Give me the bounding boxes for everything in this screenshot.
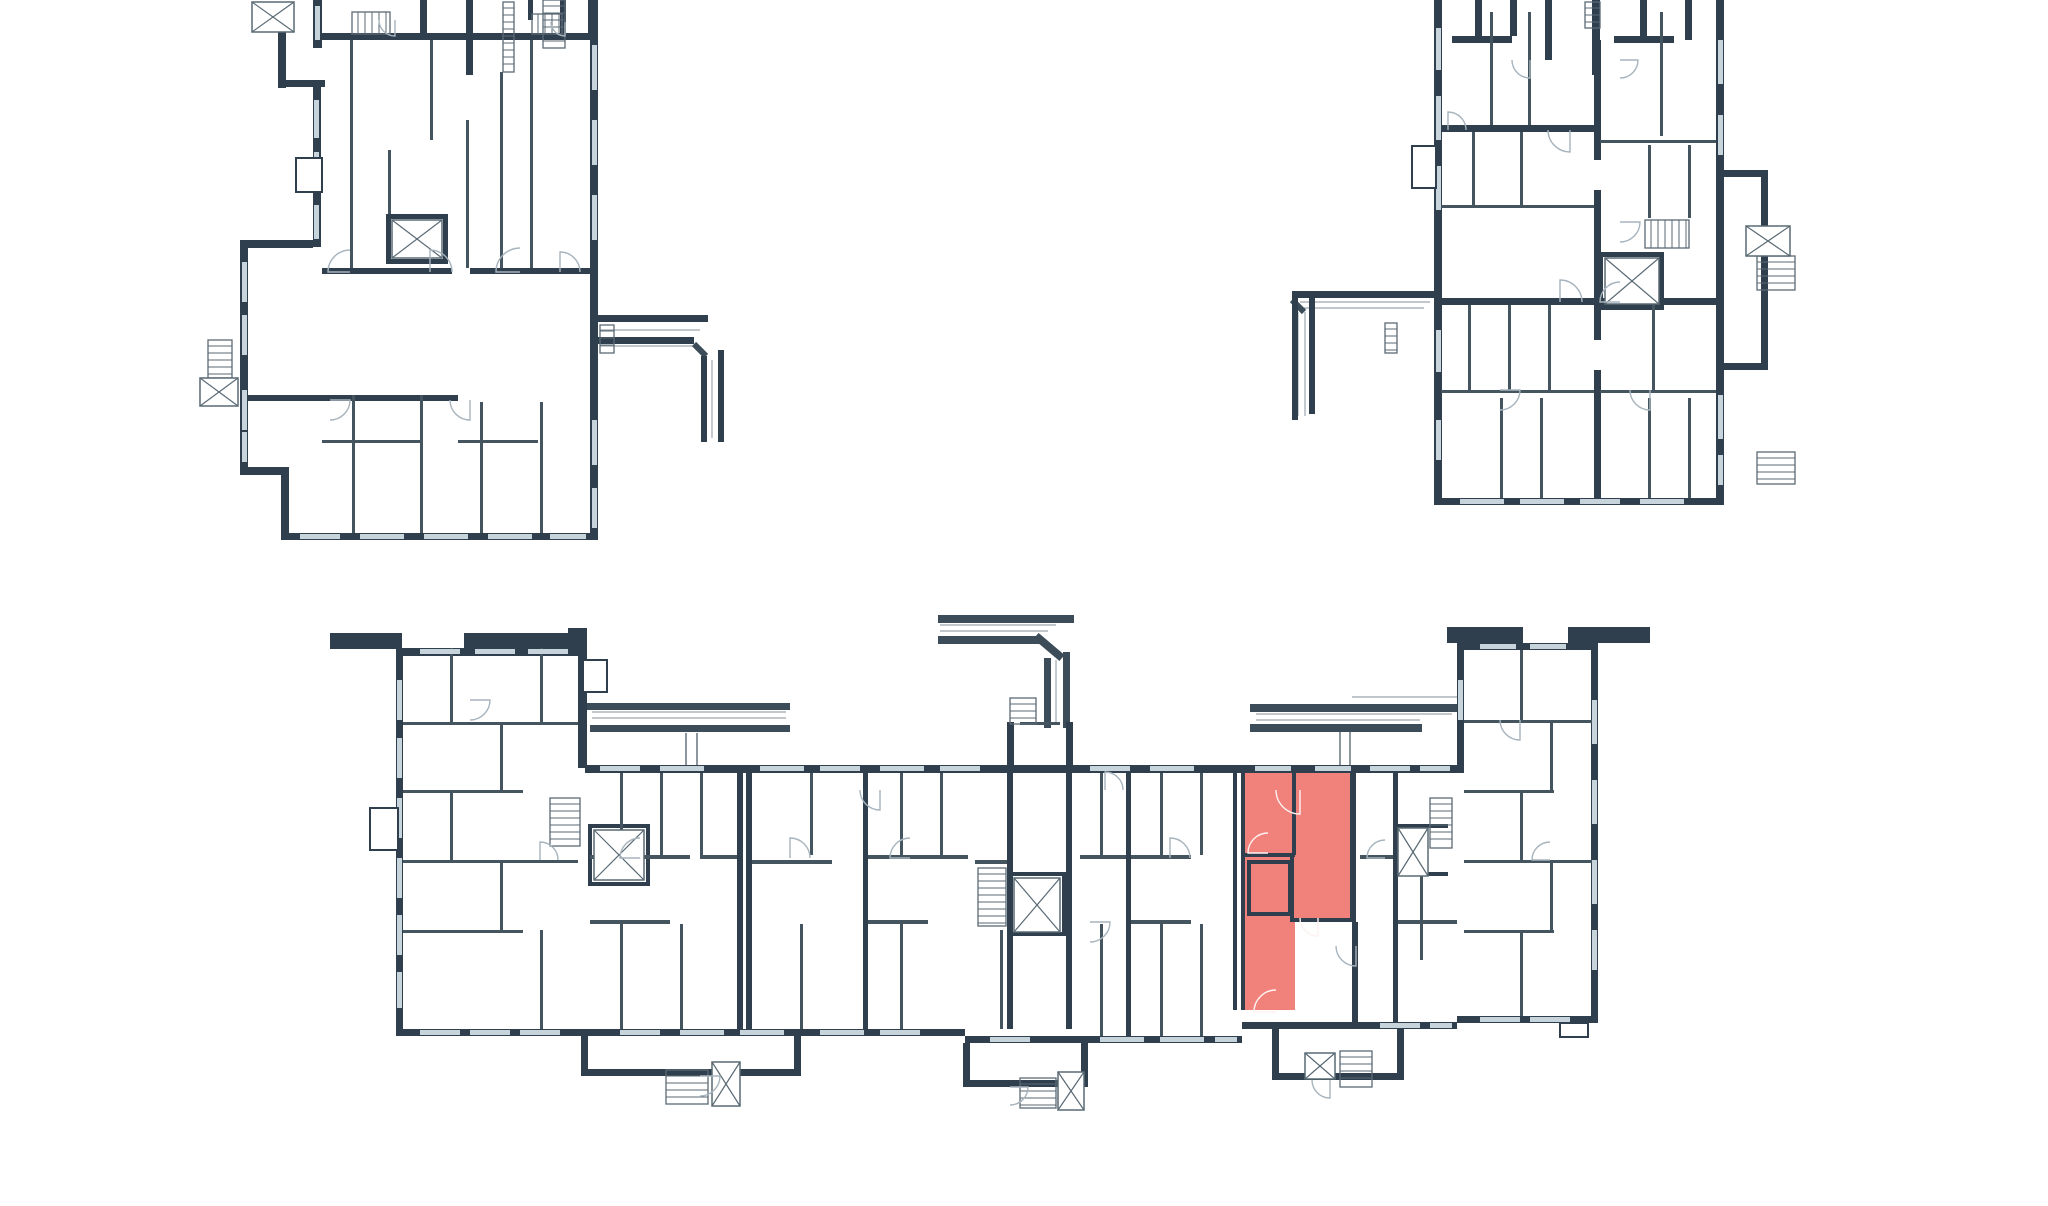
partition-wall (1200, 924, 1203, 1036)
partition-wall (1520, 132, 1523, 205)
window-glass (242, 432, 247, 462)
window-glass (820, 766, 860, 771)
wall-segment (1685, 0, 1692, 40)
wall-segment (1126, 765, 1131, 1036)
window-glass (592, 488, 597, 528)
window-glass (1480, 1017, 1520, 1022)
window-glass (940, 766, 980, 771)
window-glass (397, 915, 402, 955)
partition-wall (1540, 398, 1543, 498)
partition-wall (403, 722, 578, 725)
partition-wall (1100, 773, 1103, 855)
window-glass (242, 315, 247, 355)
wall-segment (1545, 0, 1552, 60)
partition-wall (403, 790, 523, 793)
window-glass (1592, 780, 1597, 824)
wall-segment (1241, 769, 1245, 1010)
window-glass (314, 205, 319, 239)
partition-wall (352, 395, 355, 533)
wall-segment (598, 315, 708, 322)
floor-plan-canvas (0, 0, 2048, 1206)
window-glass (990, 1037, 1030, 1042)
window-glass (1718, 395, 1723, 439)
wall-segment (588, 882, 650, 886)
window-glass (397, 738, 402, 778)
wall-segment (737, 765, 743, 1029)
partition-wall (700, 855, 737, 859)
window-glass (528, 649, 568, 654)
wall-segment (466, 0, 473, 75)
wall-segment (1457, 643, 1598, 650)
partition-wall (388, 150, 391, 214)
partition-wall (1000, 930, 1003, 1029)
wall-segment (1568, 627, 1650, 643)
wall-segment (322, 268, 452, 274)
wall-segment (470, 268, 598, 274)
window-glass (592, 45, 597, 90)
partition-wall (540, 648, 543, 722)
window-glass (315, 6, 320, 40)
elevator-icon (1014, 878, 1060, 932)
partition-wall (480, 402, 483, 533)
wall-segment (1614, 36, 1674, 43)
window-glass (1436, 28, 1441, 70)
partition-wall (1464, 930, 1554, 933)
wall-segment (718, 350, 724, 442)
wall-segment (1352, 922, 1358, 1022)
wall-segment (1598, 252, 1664, 257)
canopy-bar (1063, 652, 1070, 728)
partition-wall (500, 860, 503, 930)
wall-segment (278, 80, 325, 87)
partition-wall (1688, 398, 1691, 498)
wall-segment (1350, 769, 1356, 922)
partition-wall (900, 924, 903, 1029)
partition-wall (458, 440, 538, 443)
window-glass (1718, 40, 1723, 84)
window-glass (1315, 766, 1351, 771)
window-glass (1380, 1023, 1420, 1028)
wall-segment (386, 214, 391, 264)
window-glass (1718, 115, 1723, 155)
window-glass (1718, 455, 1723, 485)
window-glass (360, 534, 404, 539)
partition-wall (868, 920, 928, 924)
partition-wall (1080, 855, 1126, 859)
balcony-box (1412, 146, 1436, 188)
wall-segment (701, 356, 707, 442)
window-glass (1430, 1023, 1452, 1028)
partition-wall (810, 773, 813, 855)
window-glass (592, 120, 597, 165)
partition-wall (940, 773, 943, 855)
partition-wall (1648, 145, 1651, 218)
wall-segment (420, 0, 427, 40)
window-glass (397, 680, 402, 720)
wall-segment (1008, 872, 1012, 936)
wall-segment (1290, 853, 1294, 922)
partition-wall (1600, 140, 1716, 143)
partition-wall (752, 860, 832, 864)
elevator-icon (1058, 1072, 1084, 1110)
balcony-box (583, 660, 607, 692)
partition-wall (1648, 398, 1651, 498)
partition-wall (1131, 855, 1191, 859)
partition-wall (1508, 305, 1511, 390)
window-glass (1530, 1017, 1570, 1022)
partition-wall (800, 924, 803, 1029)
window-glass (1436, 420, 1441, 460)
partition-wall (1200, 773, 1203, 855)
window-glass (397, 972, 402, 1008)
window-glass (1420, 766, 1450, 771)
partition-wall (350, 40, 353, 268)
partition-wall (322, 440, 422, 443)
partition-wall (466, 120, 469, 268)
window-glass (1160, 1037, 1204, 1042)
window-glass (420, 1030, 460, 1035)
window-glass (420, 649, 460, 654)
wall-segment (568, 628, 587, 636)
window-glass (1100, 1037, 1144, 1042)
partition-wall (530, 40, 533, 268)
canopy-bar (1250, 704, 1460, 712)
balcony-box (296, 158, 322, 192)
partition-wall (700, 773, 703, 855)
window-glass (1580, 499, 1620, 504)
elevator-icon (1605, 258, 1659, 304)
window-glass (314, 100, 319, 138)
partition-wall (1464, 720, 1594, 723)
window-glass (424, 534, 468, 539)
window-glass (300, 534, 340, 539)
wall-segment (1441, 298, 1601, 305)
balcony-box (1560, 1023, 1588, 1037)
window-glass (1255, 766, 1291, 771)
wall-segment (1761, 170, 1768, 370)
partition-wall (1464, 860, 1594, 863)
canopy-bar (938, 615, 1074, 623)
wall-segment (1457, 1016, 1598, 1023)
partition-wall (660, 773, 663, 855)
wall-segment (240, 467, 288, 475)
wall-segment (578, 628, 587, 768)
wall-segment (1007, 722, 1014, 773)
partition-wall (680, 924, 683, 1029)
wall-segment (1066, 722, 1073, 773)
wall-segment (1640, 0, 1647, 40)
partition-wall (590, 920, 670, 924)
wall-segment (281, 467, 289, 540)
wall-segment (1510, 0, 1517, 36)
wall-segment (1233, 769, 1237, 1010)
window-glass (1530, 644, 1566, 649)
elevator-icon (392, 220, 442, 258)
wall-segment (1452, 36, 1512, 43)
wall-segment (1393, 765, 1398, 1022)
partition-wall (420, 395, 423, 533)
wall-segment (1441, 125, 1594, 132)
wall-segment (1247, 860, 1251, 916)
window-glass (470, 1030, 510, 1035)
elevator-icon (594, 830, 644, 880)
canopy-bar (590, 725, 790, 732)
floor-plan-svg (0, 0, 2048, 1206)
window-glass (1458, 680, 1463, 720)
elevator-icon (1746, 226, 1790, 256)
wall-segment (386, 214, 448, 219)
wall-segment (1594, 40, 1601, 160)
balcony-box (370, 808, 398, 850)
window-glass (520, 1030, 560, 1035)
wall-segment (746, 765, 752, 1029)
partition-wall (1441, 205, 1594, 208)
wall-segment (1292, 291, 1434, 298)
window-glass (550, 534, 586, 539)
partition-wall (900, 773, 903, 855)
window-glass (740, 1030, 784, 1035)
elevator-icon (1398, 828, 1428, 876)
window-glass (760, 766, 804, 771)
window-glass (242, 262, 247, 302)
wall-segment (1247, 912, 1292, 916)
partition-wall (1520, 933, 1523, 1016)
window-glass (1215, 1037, 1237, 1042)
window-glass (1370, 766, 1410, 771)
window-glass (880, 766, 924, 771)
window-glass (397, 858, 402, 898)
partition-wall (1131, 920, 1191, 924)
partition-wall (1688, 145, 1691, 218)
wall-segment (1066, 773, 1072, 1029)
window-glass (242, 390, 247, 430)
partition-wall (620, 924, 623, 1029)
window-glass (475, 649, 515, 654)
wall-segment (240, 240, 313, 248)
wall-segment (1062, 872, 1066, 936)
wall-segment (1397, 1029, 1404, 1080)
wall-segment (386, 259, 448, 264)
wall-segment (794, 1036, 801, 1076)
partition-wall (1398, 920, 1457, 924)
partition-wall (1520, 650, 1523, 720)
window-glass (1520, 499, 1564, 504)
partition-wall (500, 722, 503, 790)
window-glass (1150, 766, 1194, 771)
partition-wall (1100, 924, 1103, 1036)
partition-wall (1548, 305, 1551, 390)
partition-wall (540, 930, 543, 1029)
partition-wall (1160, 924, 1163, 1036)
wall-segment (330, 633, 402, 649)
window-glass (600, 766, 640, 771)
window-glass (1640, 499, 1684, 504)
partition-wall (1550, 863, 1553, 930)
partition-wall (450, 648, 453, 722)
wall-segment (1008, 872, 1066, 876)
canopy-bar (1250, 724, 1422, 732)
elevator-icon (1305, 1053, 1335, 1079)
window-glass (1436, 330, 1441, 372)
canopy-bar (1044, 658, 1051, 728)
canopy-bar (938, 636, 1042, 644)
partition-wall (540, 402, 543, 533)
partition-wall (1520, 793, 1523, 860)
partition-wall (1660, 12, 1663, 136)
wall-segment (1292, 298, 1298, 420)
elevator-icon (712, 1062, 740, 1106)
partition-wall (1600, 390, 1716, 393)
elevator-icon (200, 378, 238, 406)
partition-wall (403, 860, 578, 863)
window-glass (1460, 499, 1504, 504)
canopy-bar (585, 703, 790, 710)
partition-wall (1490, 12, 1493, 125)
window-glass (1592, 860, 1597, 904)
window-glass (592, 195, 597, 240)
partition-wall (1464, 790, 1554, 793)
window-glass (820, 1030, 864, 1035)
window-glass (1090, 766, 1130, 771)
partition-wall (868, 855, 968, 859)
wall-segment (278, 28, 286, 88)
partition-wall (1472, 132, 1475, 205)
window-glass (1436, 96, 1441, 140)
window-glass (880, 1030, 920, 1035)
window-glass (660, 766, 704, 771)
wall-segment (1309, 298, 1315, 414)
partition-wall (975, 860, 1007, 864)
wall-segment (1247, 860, 1292, 864)
partition-wall (1500, 398, 1503, 498)
wall-segment (1475, 0, 1482, 36)
window-glass (1592, 700, 1597, 744)
wall-segment (1272, 1029, 1279, 1080)
wall-segment (1242, 1022, 1457, 1029)
wall-segment (1594, 370, 1601, 498)
building-top-left[interactable] (196, 0, 741, 548)
window-glass (488, 534, 532, 539)
wall-segment (1723, 363, 1768, 370)
partition-wall (1652, 305, 1655, 390)
wall-segment (1447, 627, 1523, 643)
wall-segment (1272, 1073, 1404, 1080)
partition-wall (1550, 723, 1553, 790)
partition-wall (430, 40, 433, 140)
elevator-icon (252, 2, 294, 32)
partition-wall (1468, 305, 1471, 390)
partition-wall (450, 790, 453, 860)
window-glass (680, 1030, 724, 1035)
wall-segment (588, 824, 650, 828)
window-glass (1480, 644, 1516, 649)
window-glass (592, 420, 597, 465)
partition-wall (1160, 773, 1163, 855)
partition-wall (500, 72, 503, 268)
partition-wall (403, 930, 523, 933)
window-glass (620, 1030, 660, 1035)
window-glass (1592, 930, 1597, 970)
